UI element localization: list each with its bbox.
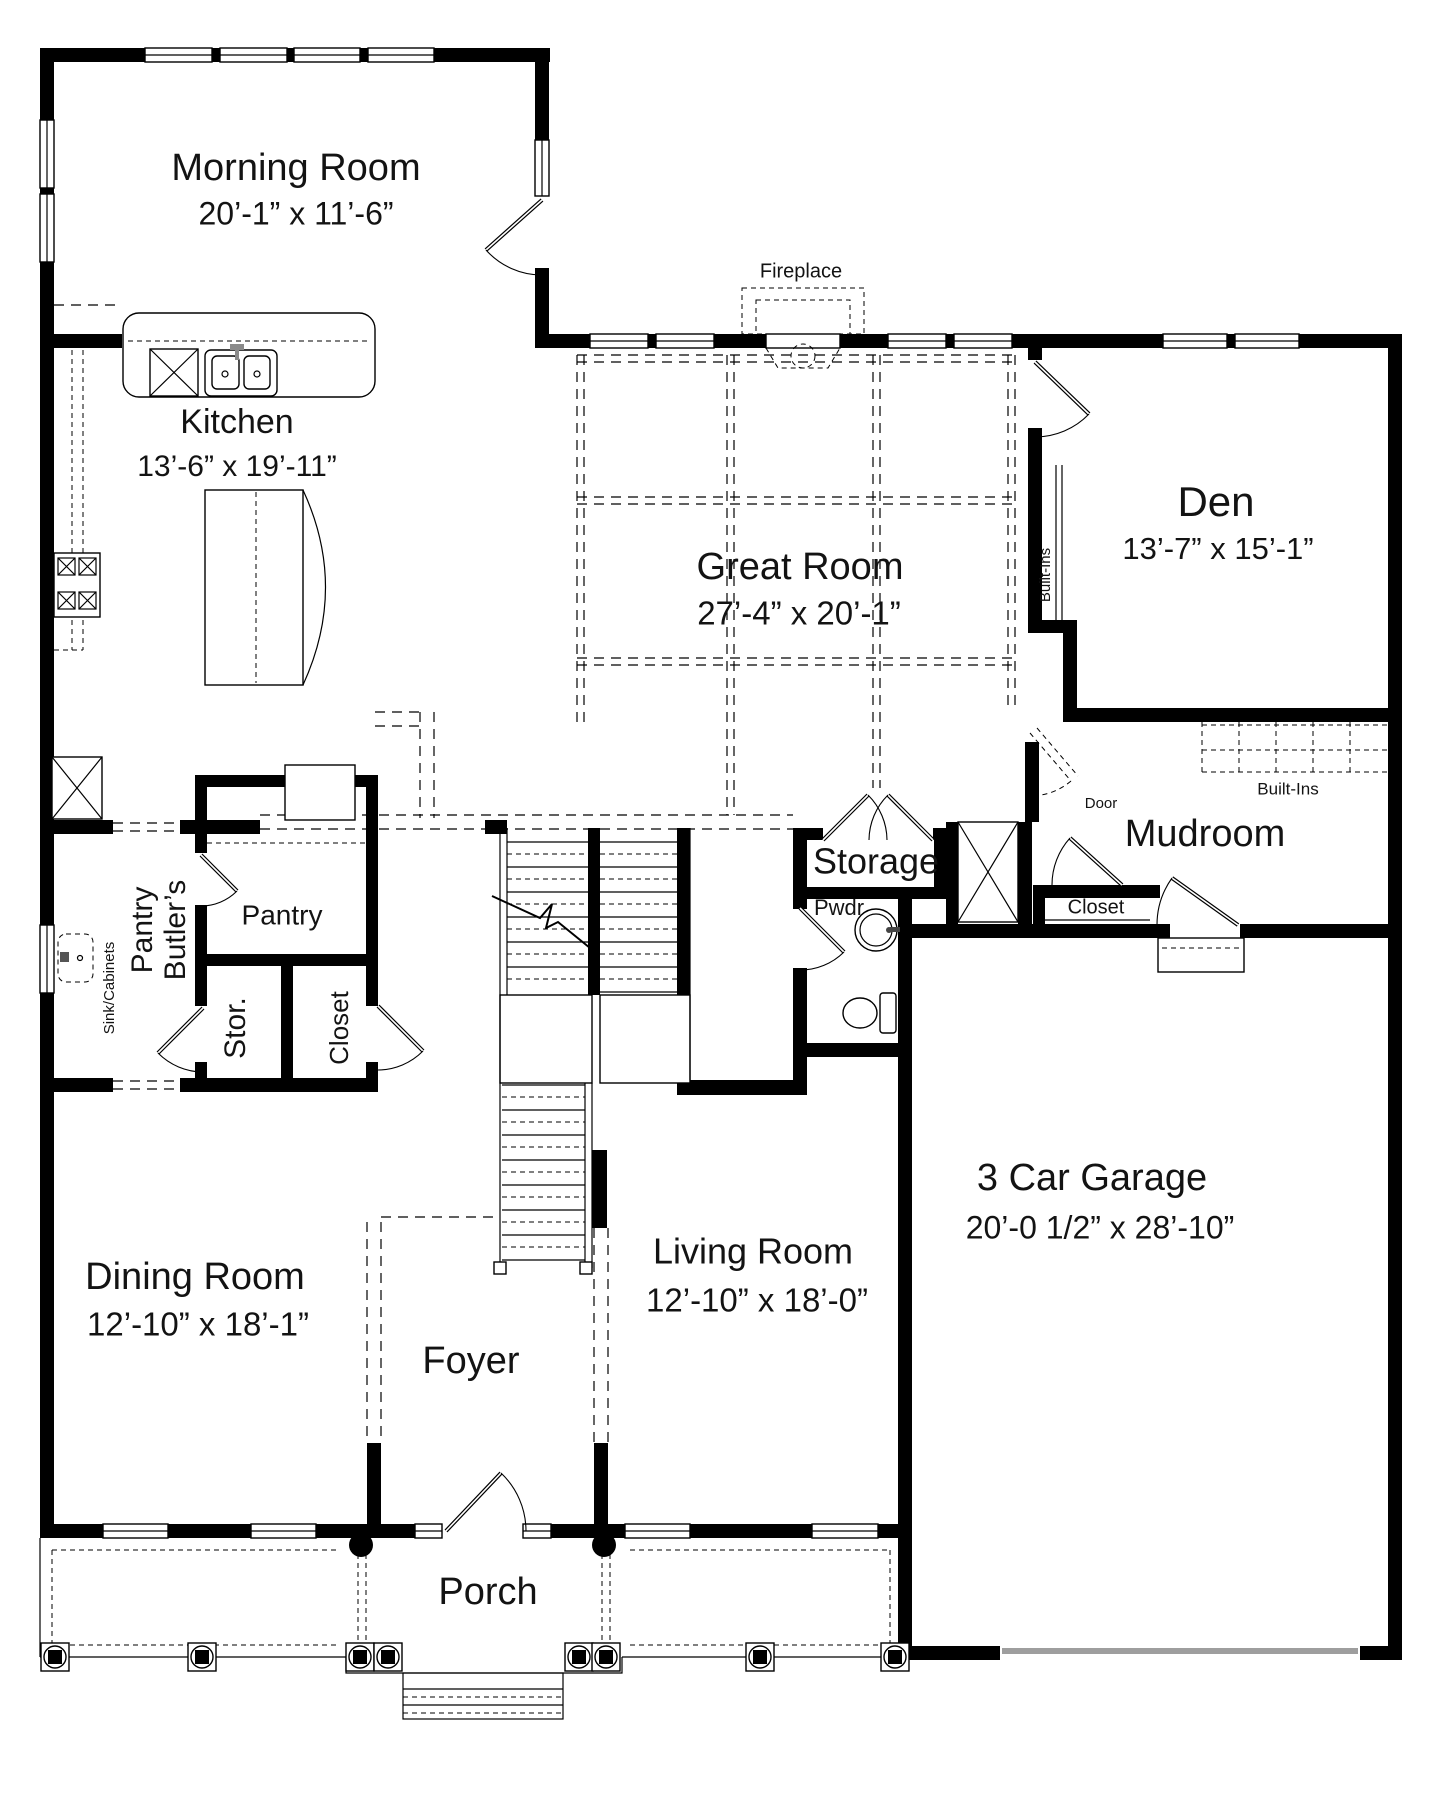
room-dims-dining-room: 12’-10” x 18’-1”	[87, 1306, 309, 1343]
doors	[158, 200, 1238, 1531]
room-label-powder: Pwdr	[814, 895, 864, 920]
window	[1163, 334, 1227, 348]
window	[40, 925, 54, 993]
front-door	[446, 1473, 526, 1531]
room-dims-great-room: 27’-4” x 20’-1”	[697, 595, 901, 632]
window	[1235, 334, 1299, 348]
pantry-door	[201, 855, 237, 906]
garage-entry-stoop	[1158, 938, 1244, 972]
annotation-mudroom-door: Door	[1085, 795, 1118, 812]
room-label-hall-closet: Closet	[324, 990, 354, 1064]
refrigerator	[52, 757, 102, 819]
room-label-pantry: Pantry	[242, 899, 323, 930]
window	[368, 48, 434, 62]
utility-chase	[958, 822, 1018, 922]
room-label-living-room: Living Room	[653, 1231, 853, 1272]
staircase	[381, 828, 690, 1274]
mudroom-built-ins-grid	[1202, 722, 1388, 775]
morning-room-door	[486, 200, 542, 275]
floor-plan: Morning Room 20’-1” x 11’-6” Kitchen 13’…	[0, 0, 1445, 1800]
window	[145, 48, 212, 62]
room-label-butlers-pantry-line2: Pantry	[126, 887, 159, 974]
annotation-fireplace: Fireplace	[760, 260, 842, 282]
kitchen-island	[205, 490, 326, 685]
window	[103, 1524, 168, 1538]
hall-closet-door	[378, 1006, 423, 1070]
room-dims-living-room: 12’-10” x 18’-0”	[646, 1282, 868, 1319]
porch-area	[40, 1533, 909, 1719]
annotation-mudroom-built-ins: Built-Ins	[1257, 779, 1318, 798]
room-label-storage: Storage	[813, 841, 939, 882]
porch-pilaster	[349, 1533, 373, 1557]
porch-steps	[403, 1673, 563, 1719]
window	[523, 1524, 551, 1538]
porch-column	[565, 1643, 593, 1671]
porch-column	[881, 1643, 909, 1671]
room-label-morning-room: Morning Room	[171, 147, 420, 189]
window	[954, 334, 1012, 348]
room-label-den: Den	[1177, 478, 1254, 525]
room-dims-den: 13’-7” x 15’-1”	[1122, 531, 1313, 566]
window	[812, 1524, 878, 1538]
den-built-ins	[1056, 465, 1062, 625]
room-label-stor: Stor.	[219, 997, 252, 1059]
annotation-sink-cabinets: Sink/Cabinets	[101, 942, 118, 1035]
window	[220, 48, 287, 62]
den-door	[1035, 362, 1089, 437]
storage-double-doors	[823, 795, 933, 840]
porch-column	[374, 1643, 402, 1671]
window	[294, 48, 360, 62]
floor-plan-page: Morning Room 20’-1” x 11’-6” Kitchen 13’…	[0, 0, 1445, 1800]
room-label-butlers-pantry-line1: Butler’s	[159, 880, 192, 981]
kitchen-sink	[205, 344, 277, 396]
toilet	[843, 993, 896, 1033]
room-label-great-room: Great Room	[697, 546, 904, 588]
window	[40, 194, 54, 262]
room-dims-morning-room: 20’-1” x 11’-6”	[198, 195, 393, 231]
porch-column	[41, 1643, 69, 1671]
mudroom-closet-door	[1052, 838, 1122, 885]
room-label-mudroom: Mudroom	[1125, 813, 1286, 855]
window	[590, 334, 648, 348]
window	[415, 1524, 442, 1538]
room-dims-kitchen: 13’-6” x 19’-11”	[137, 450, 337, 483]
room-label-porch: Porch	[438, 1571, 537, 1613]
room-label-garage: 3 Car Garage	[977, 1157, 1207, 1199]
stove	[54, 553, 100, 617]
window	[656, 334, 714, 348]
window	[888, 334, 946, 348]
butlers-sink	[58, 934, 93, 982]
porch-pilaster	[592, 1533, 616, 1557]
room-label-dining-room: Dining Room	[85, 1256, 305, 1298]
porch-column	[592, 1643, 620, 1671]
room-label-kitchen: Kitchen	[180, 403, 293, 441]
garage-door	[1002, 1648, 1358, 1654]
room-label-foyer: Foyer	[422, 1340, 519, 1382]
powder-room-fixtures	[843, 909, 900, 1033]
porch-column	[188, 1643, 216, 1671]
annotation-den-built-ins: Built-Ins	[1037, 548, 1054, 602]
porch-column	[746, 1643, 774, 1671]
window	[40, 120, 54, 188]
window	[251, 1524, 316, 1538]
window	[625, 1524, 690, 1538]
room-label-mudroom-closet: Closet	[1068, 896, 1125, 918]
room-dims-garage: 20’-0 1/2” x 28’-10”	[966, 1209, 1235, 1245]
fireplace	[742, 288, 864, 368]
garage-entry-door	[1157, 878, 1238, 925]
porch-column	[346, 1643, 374, 1671]
dishwasher	[150, 349, 198, 396]
window	[535, 140, 549, 196]
